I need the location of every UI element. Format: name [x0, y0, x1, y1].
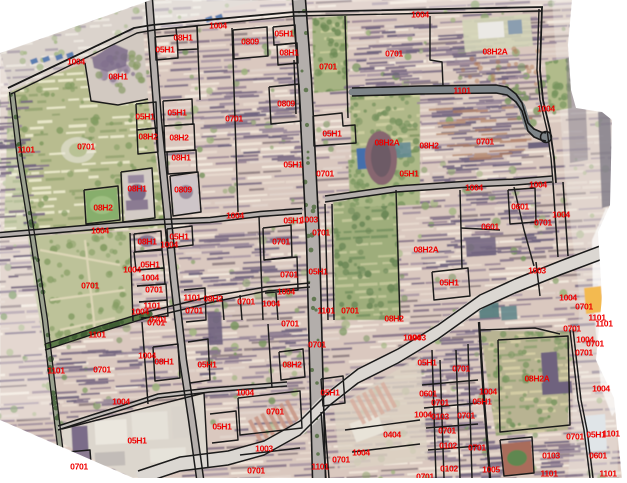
svg-text:0102: 0102 — [439, 441, 457, 451]
svg-text:05H1: 05H1 — [167, 108, 187, 118]
svg-text:1101: 1101 — [599, 469, 617, 479]
svg-text:1101: 1101 — [602, 429, 620, 439]
svg-text:0601: 0601 — [481, 222, 499, 232]
svg-text:0404: 0404 — [383, 430, 401, 440]
svg-text:08H1: 08H1 — [108, 72, 128, 82]
svg-text:05H1: 05H1 — [399, 169, 419, 179]
svg-text:1003: 1003 — [255, 444, 273, 454]
svg-text:0701: 0701 — [575, 302, 593, 312]
svg-text:05H1: 05H1 — [212, 422, 232, 432]
svg-text:0701: 0701 — [225, 114, 243, 124]
svg-text:08H2A: 08H2A — [482, 47, 507, 57]
svg-text:1004: 1004 — [141, 273, 159, 283]
svg-text:08H2A: 08H2A — [374, 138, 399, 148]
svg-text:05H1: 05H1 — [197, 360, 217, 370]
svg-text:08H1: 08H1 — [173, 33, 193, 43]
svg-text:0701: 0701 — [70, 462, 88, 472]
svg-text:08H2: 08H2 — [282, 360, 302, 370]
svg-text:0701: 0701 — [566, 432, 584, 442]
svg-text:0701: 0701 — [266, 407, 284, 417]
svg-text:1101: 1101 — [540, 469, 558, 479]
svg-text:0701: 0701 — [431, 398, 449, 408]
svg-text:05H1: 05H1 — [472, 397, 492, 407]
svg-text:1101: 1101 — [317, 306, 335, 316]
svg-text:05H1: 05H1 — [283, 160, 303, 170]
svg-text:08H2A: 08H2A — [524, 374, 549, 384]
svg-text:08H2: 08H2 — [169, 133, 189, 143]
svg-text:0701: 0701 — [93, 365, 111, 375]
svg-text:0701: 0701 — [312, 228, 330, 238]
svg-text:0701: 0701 — [341, 306, 359, 316]
svg-text:05H1: 05H1 — [417, 358, 437, 368]
svg-text:0701: 0701 — [452, 364, 470, 374]
svg-text:05H1: 05H1 — [127, 436, 147, 446]
svg-text:0809: 0809 — [241, 37, 259, 47]
svg-text:08H2: 08H2 — [203, 294, 223, 304]
svg-text:0701: 0701 — [457, 411, 475, 421]
svg-text:0701: 0701 — [145, 285, 163, 295]
svg-text:08H1: 08H1 — [154, 357, 174, 367]
svg-text:1004: 1004 — [91, 226, 109, 236]
svg-text:0701: 0701 — [416, 472, 434, 479]
svg-text:1004: 1004 — [414, 410, 432, 420]
svg-text:05H1: 05H1 — [140, 260, 160, 270]
svg-text:05H1: 05H1 — [274, 29, 294, 39]
svg-text:05H1: 05H1 — [322, 129, 342, 139]
svg-text:1004: 1004 — [479, 387, 497, 397]
svg-text:0701: 0701 — [280, 270, 298, 280]
svg-text:1101: 1101 — [88, 330, 106, 340]
svg-text:08H1: 08H1 — [171, 153, 191, 163]
svg-text:1101: 1101 — [453, 86, 471, 96]
svg-text:0701: 0701 — [438, 426, 456, 436]
svg-text:1004: 1004 — [529, 180, 547, 190]
svg-text:0701: 0701 — [185, 306, 203, 316]
svg-text:0809: 0809 — [174, 185, 192, 195]
svg-text:0809: 0809 — [277, 99, 295, 109]
svg-text:08H1: 08H1 — [127, 184, 147, 194]
svg-text:05H1: 05H1 — [308, 267, 328, 277]
svg-text:0102: 0102 — [440, 464, 458, 474]
svg-text:0701: 0701 — [237, 297, 255, 307]
svg-text:0701: 0701 — [147, 318, 165, 328]
svg-text:1004: 1004 — [552, 210, 570, 220]
svg-text:0701: 0701 — [316, 169, 334, 179]
svg-text:1003: 1003 — [408, 333, 426, 343]
svg-text:05H1: 05H1 — [155, 45, 175, 55]
svg-text:0701: 0701 — [534, 218, 552, 228]
svg-text:1004: 1004 — [131, 307, 149, 317]
svg-text:0701: 0701 — [247, 466, 265, 476]
svg-text:1004: 1004 — [262, 299, 280, 309]
svg-text:1004: 1004 — [592, 384, 610, 394]
svg-text:0103: 0103 — [542, 451, 560, 461]
svg-text:1004: 1004 — [277, 287, 295, 297]
svg-text:1004: 1004 — [465, 183, 483, 193]
svg-text:0701: 0701 — [272, 237, 290, 247]
svg-text:0701: 0701 — [563, 324, 581, 334]
svg-text:1004: 1004 — [236, 388, 254, 398]
svg-text:0701: 0701 — [385, 49, 403, 59]
svg-text:0701: 0701 — [281, 319, 299, 329]
svg-text:0601: 0601 — [589, 451, 607, 461]
svg-text:1003: 1003 — [300, 215, 318, 225]
svg-text:08H1: 08H1 — [137, 237, 157, 247]
svg-text:1005: 1005 — [482, 465, 500, 475]
svg-text:1101: 1101 — [595, 319, 613, 329]
svg-text:1004: 1004 — [112, 397, 130, 407]
svg-text:1004: 1004 — [123, 265, 141, 275]
svg-text:0601: 0601 — [511, 202, 529, 212]
svg-text:0701: 0701 — [476, 137, 494, 147]
svg-text:1004: 1004 — [537, 104, 555, 114]
svg-text:08H2: 08H2 — [138, 132, 158, 142]
svg-text:0701: 0701 — [332, 455, 350, 465]
svg-text:1003: 1003 — [528, 266, 546, 276]
svg-text:08H2: 08H2 — [419, 141, 439, 151]
svg-text:05H1: 05H1 — [320, 388, 340, 398]
svg-text:0701: 0701 — [468, 443, 486, 453]
svg-text:0701: 0701 — [319, 62, 337, 72]
svg-text:1004: 1004 — [411, 10, 429, 20]
svg-text:1004: 1004 — [209, 21, 227, 31]
svg-text:0701: 0701 — [81, 281, 99, 291]
svg-text:1004: 1004 — [160, 240, 178, 250]
svg-text:1101: 1101 — [183, 293, 201, 303]
svg-text:1101: 1101 — [17, 145, 35, 155]
svg-text:08H2: 08H2 — [384, 314, 404, 324]
svg-text:1101: 1101 — [47, 366, 65, 376]
svg-text:08H2A: 08H2A — [413, 245, 438, 255]
svg-text:0701: 0701 — [77, 142, 95, 152]
svg-text:1004: 1004 — [226, 211, 244, 221]
svg-text:0701: 0701 — [308, 340, 326, 350]
svg-text:1101: 1101 — [311, 462, 329, 472]
svg-text:08H2: 08H2 — [93, 203, 113, 213]
svg-text:05H1: 05H1 — [135, 112, 155, 122]
svg-text:0701: 0701 — [575, 348, 593, 358]
svg-text:0103: 0103 — [431, 412, 449, 422]
svg-text:1004: 1004 — [352, 448, 370, 458]
svg-text:08H1: 08H1 — [279, 48, 299, 58]
svg-text:1004: 1004 — [67, 57, 85, 67]
svg-text:05H1: 05H1 — [439, 278, 459, 288]
